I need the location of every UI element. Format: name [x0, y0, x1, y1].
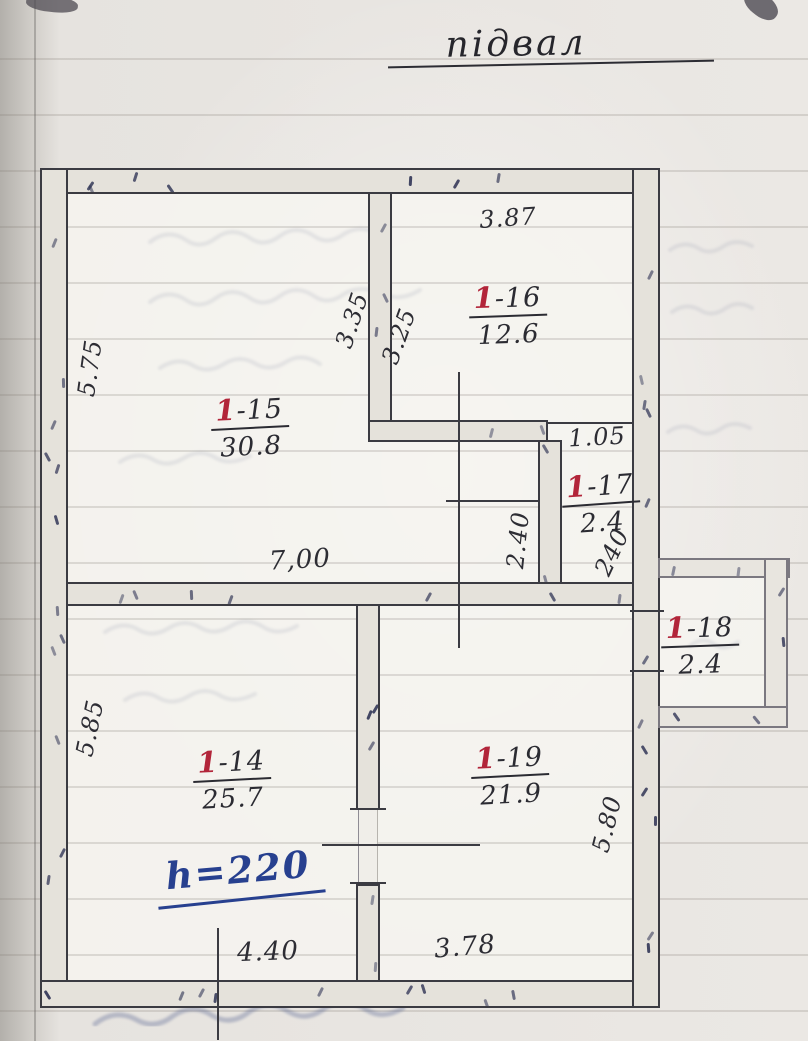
- page-edge-line: [34, 0, 36, 1041]
- dim-1-05: 1.05: [568, 422, 627, 453]
- wall-hatch-tick: [512, 990, 517, 1000]
- scanned-floor-plan-page: підвал 1-15 30.8 1-16 12.6 1-17 2.4 1-18: [0, 0, 808, 1041]
- wall-hatch-tick: [43, 990, 51, 1000]
- scan-smudge-top-right: [739, 0, 782, 25]
- wall-hatch-tick: [645, 408, 652, 418]
- dim-bottom-4-40: 4.40: [237, 936, 300, 968]
- wall-hatch-tick: [752, 715, 761, 725]
- wall-hatch-tick: [227, 595, 233, 605]
- wall-hatch-tick: [54, 464, 60, 474]
- wall-outer-right: [632, 168, 660, 1008]
- room-area-1-16: 12.6: [469, 319, 548, 352]
- annex-door-tick-bottom: [630, 670, 664, 672]
- wall-hatch-tick: [133, 172, 139, 182]
- wall-hatch-tick: [777, 587, 785, 597]
- wall-hatch-tick: [639, 375, 644, 385]
- wall-hatch-tick: [62, 378, 65, 388]
- wall-hatch-tick: [540, 425, 546, 435]
- plan-title: підвал: [445, 22, 587, 65]
- wall-hatch-tick: [646, 931, 654, 941]
- wall-hatch-tick: [640, 745, 648, 755]
- wall-hatch-tick: [55, 606, 59, 616]
- wall-hatch-tick: [372, 704, 380, 714]
- wall-hatch-tick: [654, 816, 657, 826]
- wall-hatch-tick: [483, 998, 489, 1008]
- room-label-1-18: 1-18 2.4: [660, 609, 740, 682]
- room-number-1-15: 1-15: [209, 390, 289, 431]
- wall-hatch-tick: [51, 238, 57, 248]
- wall-hatch-tick: [50, 419, 57, 429]
- wall-hatch-tick: [58, 848, 65, 858]
- room-area-1-14: 25.7: [193, 782, 272, 816]
- room-label-1-17: 1-17 2.4: [560, 465, 642, 540]
- wall-hatch-tick: [375, 327, 379, 337]
- wall-hatch-tick: [167, 184, 175, 194]
- opening-tick-top: [350, 808, 386, 810]
- wall-hatch-tick: [647, 270, 654, 280]
- wall-hatch-tick: [367, 741, 375, 751]
- dim-7-00: 7,00: [268, 543, 331, 576]
- room-label-1-15: 1-15 30.8: [209, 390, 290, 464]
- wall-hatch-tick: [542, 444, 550, 454]
- annex-door-tick-top: [630, 610, 664, 612]
- wall-hatch-tick: [496, 173, 501, 183]
- wall-hatch-tick: [489, 428, 494, 438]
- wall-hatch-tick: [641, 787, 649, 797]
- wall-hatch-tick: [644, 498, 651, 508]
- wall-outer-left: [40, 168, 68, 1008]
- wall-hatch-tick: [54, 515, 60, 525]
- extension-line-bottom-left: [217, 928, 219, 1040]
- dim-top-3-87: 3.87: [478, 202, 537, 234]
- wall-between-1-14-and-1-19-lower: [356, 884, 380, 982]
- wall-hatch-tick: [672, 712, 680, 722]
- wall-left-of-1-17: [538, 440, 562, 586]
- wall-hatch-tick: [317, 986, 324, 996]
- wall-hatch-tick: [370, 895, 374, 905]
- wall-hatch-tick: [781, 637, 785, 647]
- room-area-1-19: 21.9: [471, 778, 550, 812]
- wall-hatch-tick: [43, 452, 50, 462]
- wall-hatch-tick: [382, 293, 389, 303]
- room-number-1-16: 1-16: [468, 279, 547, 319]
- wall-hatch-tick: [189, 589, 192, 599]
- wall-hatch-tick: [374, 962, 378, 972]
- extension-line-center: [458, 372, 460, 648]
- wall-outer-top: [40, 168, 660, 194]
- wall-annex-bottom: [658, 706, 788, 728]
- extension-line-1-17: [446, 500, 540, 502]
- room-label-1-16: 1-16 12.6: [468, 279, 548, 352]
- room-label-1-19: 1-19 21.9: [469, 738, 550, 812]
- dim-bottom-3-78: 3.78: [433, 929, 497, 964]
- opening-tick-bottom: [350, 882, 386, 884]
- wall-hatch-tick: [405, 985, 413, 995]
- room-number-1-14: 1-14: [191, 742, 271, 783]
- wall-hatch-tick: [380, 223, 387, 233]
- wall-hatch-tick: [637, 719, 644, 729]
- wall-middle-horizontal: [66, 582, 634, 606]
- wall-hatch-tick: [424, 592, 431, 602]
- wall-hatch-tick: [737, 567, 741, 577]
- wall-hatch-tick: [617, 594, 621, 604]
- wall-hatch-tick: [132, 589, 139, 599]
- wall-hatch-tick: [642, 655, 650, 665]
- wall-hatch-tick: [59, 633, 66, 643]
- wall-hatch-tick: [453, 179, 461, 189]
- room-number-1-17: 1-17: [560, 465, 640, 507]
- wall-between-1-15-and-1-16: [368, 192, 392, 424]
- wall-outer-bottom: [40, 980, 660, 1008]
- room-number-1-19: 1-19: [469, 738, 549, 779]
- wall-between-1-14-and-1-19-upper: [356, 604, 380, 810]
- door-opening-1-14-1-19: [358, 810, 378, 884]
- room-area-1-18: 2.4: [661, 649, 740, 682]
- wall-hatch-tick: [50, 646, 56, 656]
- dim-2-40: 2.40: [501, 510, 535, 570]
- room-area-1-15: 30.8: [211, 430, 290, 464]
- wall-hatch-tick: [46, 875, 50, 885]
- wall-hatch-tick: [55, 734, 61, 744]
- room-number-1-18: 1-18: [660, 609, 739, 649]
- room-label-1-14: 1-14 25.7: [191, 742, 272, 816]
- wall-annex-right: [764, 558, 788, 728]
- extension-line-door: [322, 844, 480, 846]
- wall-hatch-tick: [198, 988, 205, 998]
- wall-hatch-tick: [178, 991, 185, 1001]
- wall-hatch-tick: [420, 984, 426, 994]
- wall-hatch-tick: [647, 943, 651, 953]
- wall-hatch-tick: [409, 176, 413, 186]
- wall-hatch-tick: [671, 566, 676, 576]
- wall-hatch-tick: [118, 594, 124, 604]
- wall-hatch-tick: [549, 591, 557, 601]
